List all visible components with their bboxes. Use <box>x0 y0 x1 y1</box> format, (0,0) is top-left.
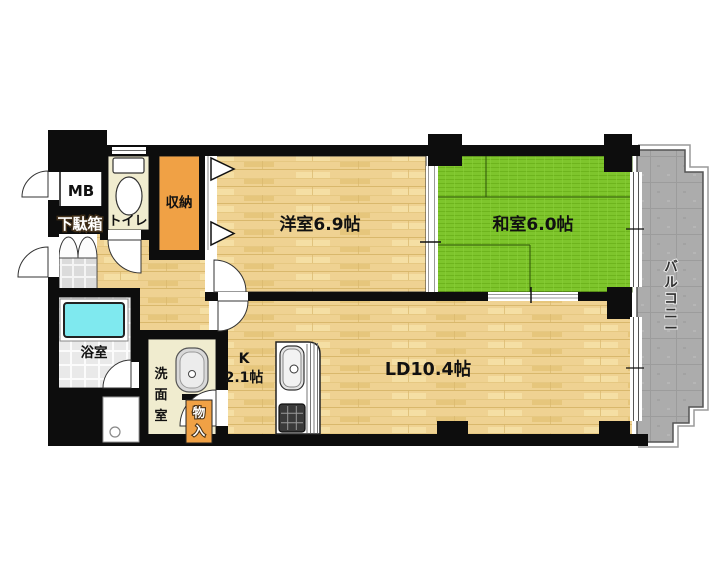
entrance-door-gap <box>48 237 59 277</box>
washroom-sink <box>176 348 208 392</box>
toilet-label: トイレ <box>108 214 147 229</box>
toilet-fixture <box>113 158 144 215</box>
sink-drain <box>189 371 196 378</box>
toilet-door-gap <box>108 230 141 240</box>
mb-door-gap <box>48 172 59 200</box>
kitchen-label-letter: K <box>239 351 251 367</box>
wall-closet-right <box>199 145 205 252</box>
closet-label: 収納 <box>166 194 193 211</box>
toilet-tank <box>113 158 144 173</box>
wall-pillar-top-center <box>428 134 462 166</box>
entryway <box>59 234 97 290</box>
living-dining-label: LD10.4帖 <box>385 359 472 380</box>
wall-japanese-ld-a <box>428 292 488 301</box>
shoe-cabinet-label: 下駄箱 <box>57 215 102 233</box>
ld-window <box>630 317 642 421</box>
wall-toilet-closet <box>149 145 159 260</box>
wall-western-ld-b <box>248 292 438 301</box>
kitchen-counter <box>276 342 320 434</box>
washroom-label: 洗 面 室 <box>154 366 167 424</box>
entry-tile-floor <box>59 258 97 290</box>
wall-washroom-right-lower <box>216 426 228 443</box>
wall-western-ld-a <box>205 292 218 301</box>
balcony-label-char: ル <box>664 275 678 291</box>
wall-block-bottom-left <box>48 390 106 446</box>
toilet-bowl <box>116 177 142 215</box>
wall-bathroom-bottom <box>52 388 140 397</box>
sliding-door-west-east <box>426 166 438 292</box>
floor-plan-canvas: MB 下駄箱 トイレ 収納 洋室6.9帖 和室6.0帖 LD10.4帖 K 2.… <box>0 0 720 576</box>
meter-box-label: MB <box>68 182 94 200</box>
wall-pillar-top-right <box>604 134 632 172</box>
wall-washroom-top <box>135 330 228 339</box>
stove <box>279 404 305 432</box>
wall-pillar-bottom-2 <box>599 421 630 435</box>
washer-pan <box>103 397 139 442</box>
washroom-door-gap <box>216 390 228 426</box>
japanese-room-label: 和室6.0帖 <box>492 214 573 235</box>
washer-drain <box>110 427 120 437</box>
washroom-label-char: 面 <box>154 388 167 403</box>
kitchen-door-gap <box>218 292 248 301</box>
balcony-label-char: ー <box>664 321 678 337</box>
washroom-label-char: 室 <box>154 408 167 424</box>
storage-label-char: 入 <box>193 423 206 438</box>
washer-space <box>103 397 139 442</box>
wall-bathroom-right-upper <box>131 288 140 362</box>
floor-plan-drawing: MB 下駄箱 トイレ 収納 洋室6.9帖 和室6.0帖 LD10.4帖 K 2.… <box>0 0 720 576</box>
kitchen-faucet <box>290 365 298 373</box>
balcony-label-char: バ <box>664 259 678 275</box>
sliding-door-japanese-ld <box>488 292 578 301</box>
wall-bathroom-top <box>48 288 140 297</box>
wall-pillar-bottom-1 <box>437 421 468 435</box>
balcony-label-char: コ <box>664 291 678 307</box>
western-room-label: 洋室6.9帖 <box>279 214 360 235</box>
western-door-gap <box>205 260 214 292</box>
storage-label-char: 物 <box>193 405 206 420</box>
wall-pillar-right-mid <box>607 287 632 319</box>
bathtub-basin <box>64 303 124 337</box>
bathroom-label: 浴室 <box>81 344 108 361</box>
wall-toilet-bottom-b <box>141 230 159 240</box>
washroom-label-char: 洗 <box>154 366 167 382</box>
wall-washroom-left <box>139 339 148 443</box>
kitchen-label-size: 2.1帖 <box>225 369 264 386</box>
bathtub <box>60 299 128 341</box>
balcony-label: バ ル コ ニ ー <box>664 259 678 337</box>
wall-closet-bottom <box>149 250 214 260</box>
wall-japanese-ld-b <box>578 292 632 301</box>
balcony-label-char: ニ <box>664 306 678 322</box>
